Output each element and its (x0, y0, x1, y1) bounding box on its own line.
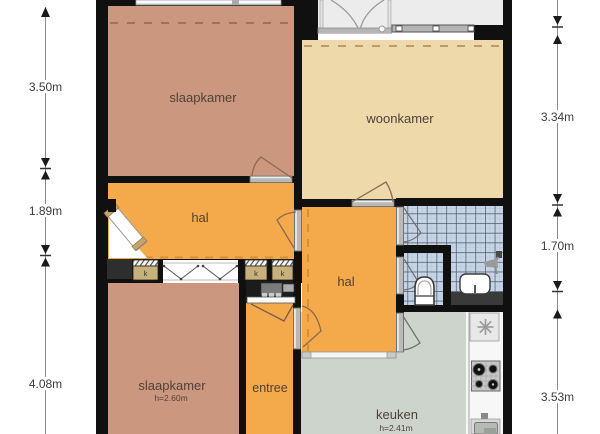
svg-text:3.34m: 3.34m (541, 110, 574, 124)
svg-text:h=2.60m: h=2.60m (154, 393, 187, 403)
svg-text:hal: hal (337, 274, 354, 289)
svg-text:slaapkamer: slaapkamer (138, 378, 206, 393)
svg-text:3.50m: 3.50m (29, 80, 62, 94)
svg-text:entree: entree (252, 381, 287, 395)
svg-text:1.70m: 1.70m (541, 239, 574, 253)
svg-text:1.89m: 1.89m (29, 204, 62, 218)
svg-text:4.08m: 4.08m (29, 377, 62, 391)
svg-text:h=2.41m: h=2.41m (379, 423, 412, 433)
svg-text:k: k (144, 269, 148, 278)
svg-text:keuken: keuken (376, 407, 418, 422)
svg-text:k: k (254, 269, 258, 278)
svg-text:k: k (281, 269, 285, 278)
svg-text:hal: hal (191, 210, 208, 225)
svg-text:woonkamer: woonkamer (365, 111, 434, 126)
svg-text:slaapkamer: slaapkamer (169, 90, 237, 105)
svg-text:3.53m: 3.53m (541, 390, 574, 404)
